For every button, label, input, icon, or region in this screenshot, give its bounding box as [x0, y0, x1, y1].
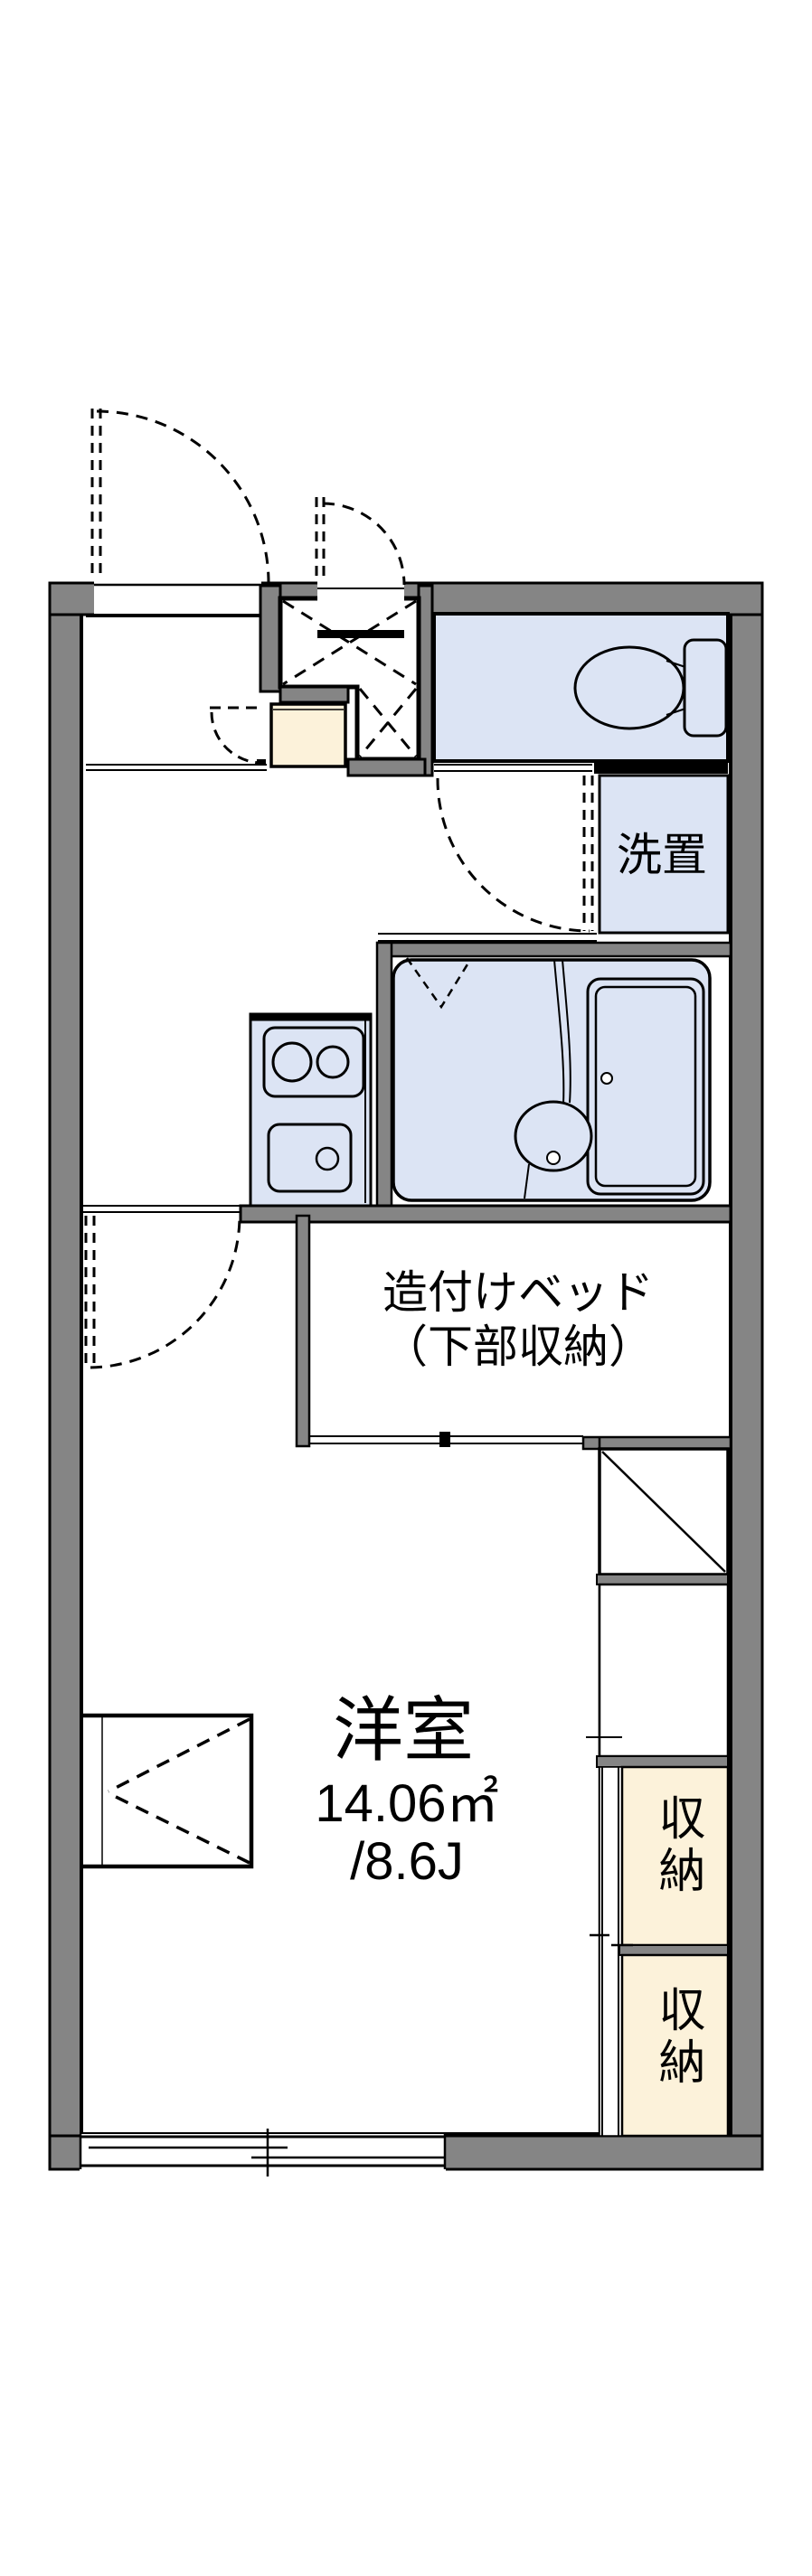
toilet-room: [434, 614, 728, 771]
washroom-door-arc: [438, 776, 592, 931]
main-room-area-tatami: /8.6J: [136, 1831, 678, 1893]
built-in-bed-label-line2: （下部収納）: [315, 1320, 722, 1374]
toilet-icon: [575, 640, 726, 736]
bottom-sliding-window-icon: [80, 2129, 446, 2176]
built-in-bed-label: 造付けベッド （下部収納）: [315, 1265, 722, 1374]
balcony-side-door-arc: [92, 409, 269, 583]
entrance-door-arc: [316, 497, 404, 585]
floor-plan: 洗置 造付けベッド （下部収納） 洋室 14.06㎡ /8.6J 収納 収納: [0, 0, 812, 2576]
washroom-label: 洗置: [593, 829, 731, 882]
main-room-door-arc: [86, 1216, 240, 1370]
storage-lower-label: 収納: [643, 1985, 704, 2120]
storage-upper-label: 収納: [643, 1793, 704, 1929]
refrigerator-space: [600, 1449, 728, 1575]
entrance-step-lines: [86, 765, 267, 770]
kitchen-counter: [250, 1014, 371, 1206]
entrance-inner-door-arc: [210, 708, 266, 766]
main-room-area-sqm: 14.06㎡: [136, 1773, 678, 1835]
main-room-label: 洋室: [132, 1688, 675, 1772]
stove-icon: [264, 1028, 364, 1096]
bathroom: [377, 943, 731, 1222]
built-in-bed-label-line1: 造付けベッド: [315, 1265, 722, 1320]
bathtub-icon: [588, 979, 703, 1194]
door-swings: [86, 409, 592, 1370]
kitchen-sink-icon: [269, 1124, 351, 1191]
bath-sink-icon: [515, 1102, 591, 1170]
top-wall-openings: [86, 580, 265, 616]
shoe-cabinet: [271, 704, 345, 766]
